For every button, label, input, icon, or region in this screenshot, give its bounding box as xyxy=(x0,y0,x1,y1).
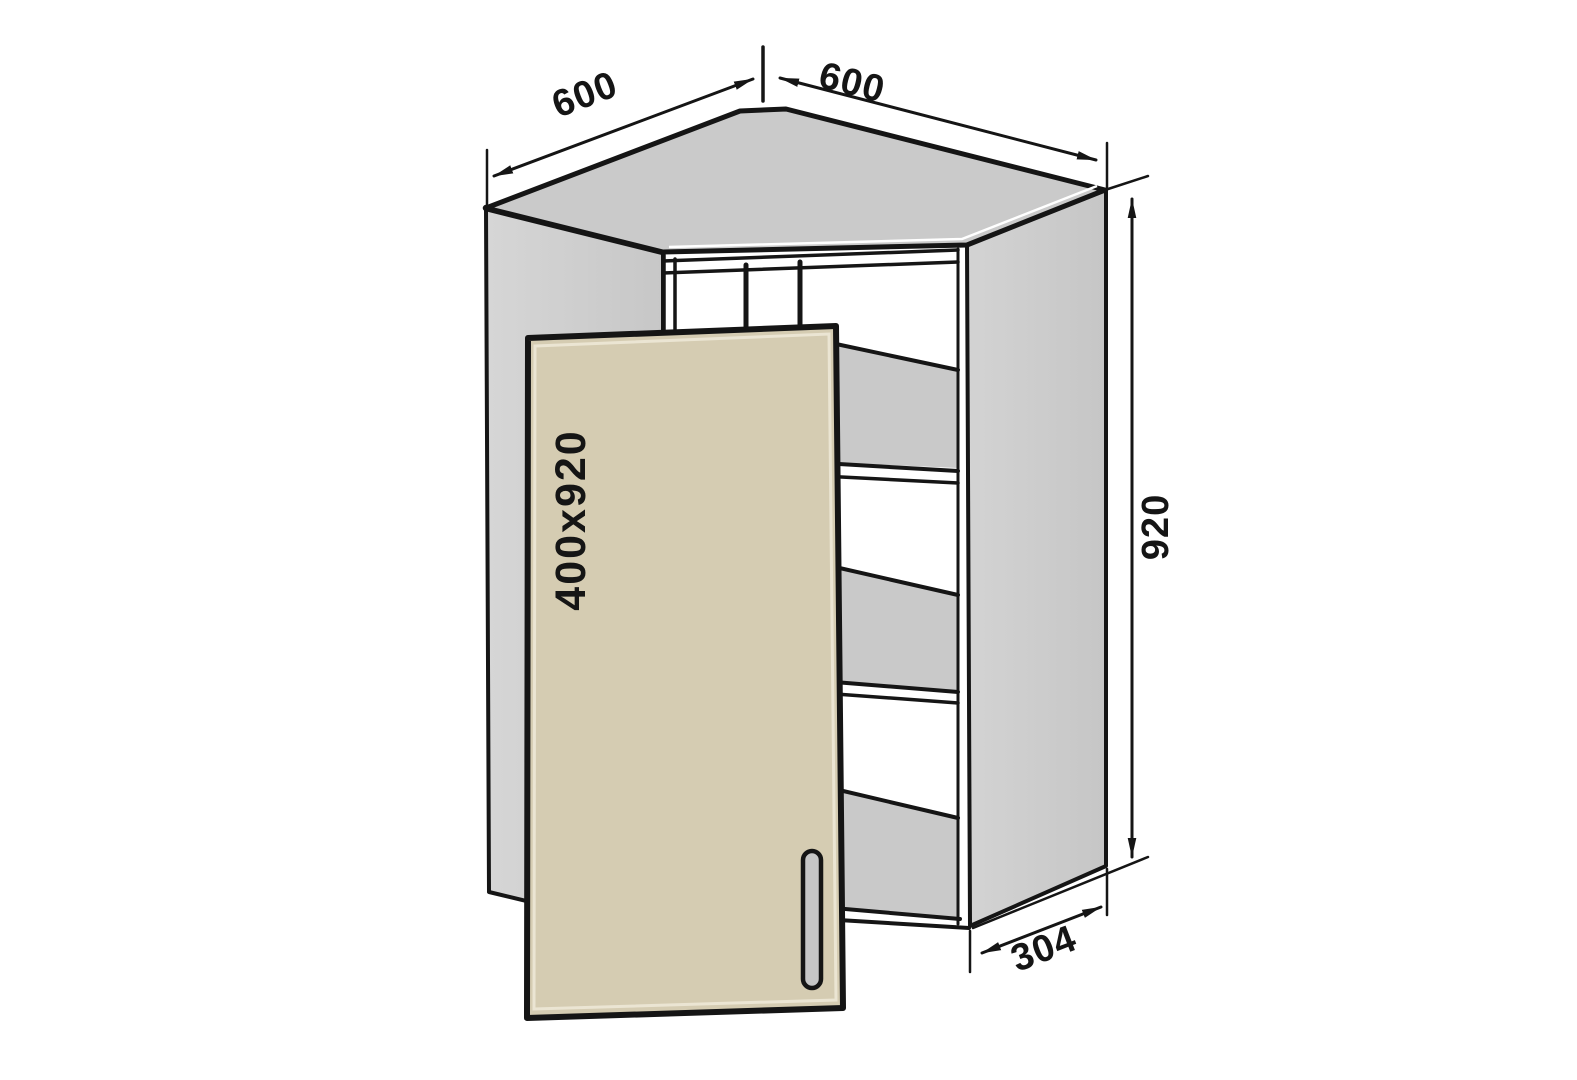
dimension-label-height: 920 xyxy=(1135,494,1177,560)
cabinet-door: 400x920 xyxy=(527,326,843,1018)
door-size-label: 400x920 xyxy=(547,429,595,610)
right-side-panel xyxy=(967,190,1106,926)
door-handle xyxy=(803,851,821,988)
drawing-canvas: 600 600 920 304 400x920 xyxy=(0,0,1577,1080)
cabinet-technical-drawing: 600 600 920 304 400x920 xyxy=(0,0,1577,1080)
